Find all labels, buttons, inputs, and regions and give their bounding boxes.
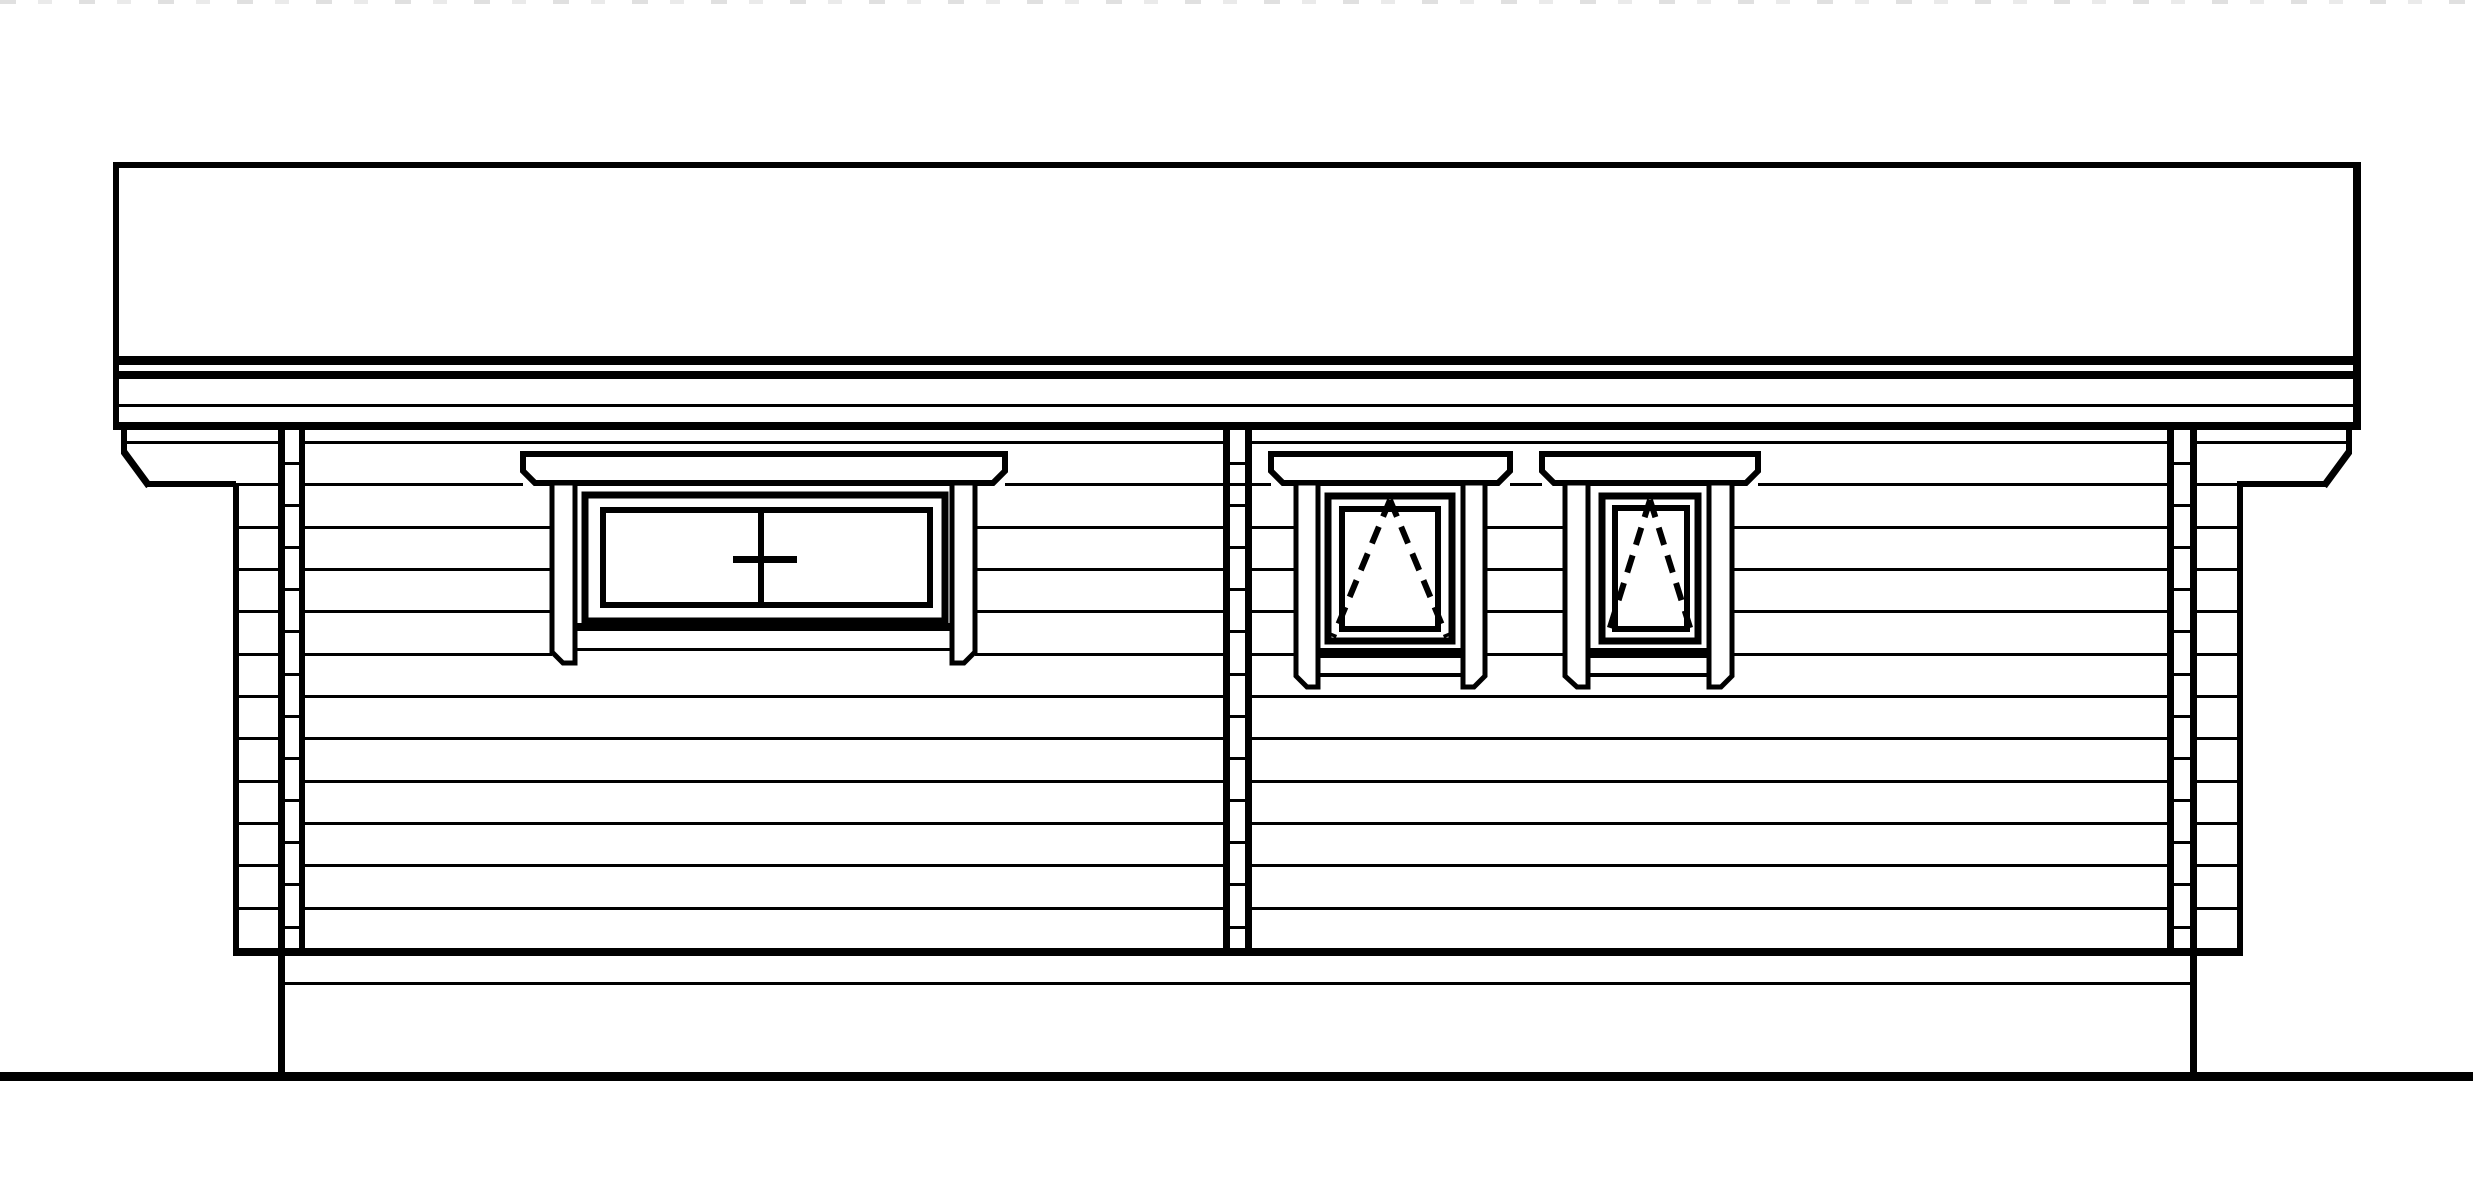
window-small-1 [1271,454,1510,687]
eave-left-chamfer [124,452,149,486]
log-end-division [285,630,299,633]
corner-joint-middle [1223,430,1252,956]
siding-board-line [239,822,278,825]
fascia-line-thin [113,404,2361,407]
window-header-board [1542,454,1758,483]
log-end-edge [1245,430,1252,956]
siding-board-line [239,568,278,571]
window-sill [1588,648,1708,658]
siding-board-line [1252,737,2167,740]
siding-board-line [2197,483,2237,486]
siding-board-line [239,780,278,783]
foundation-right-edge [2190,956,2197,1076]
window-sill [1318,648,1463,658]
siding-board-line [305,653,552,656]
log-end-division [1230,715,1245,718]
log-end-division [2174,588,2190,591]
log-end-division [2174,673,2190,676]
window-sill-bottom-line [573,648,952,651]
siding-board-line [305,737,1223,740]
corner-joint-left [278,430,305,956]
siding-board-line [1485,653,1565,656]
siding-board-line [1252,526,1296,529]
window-jamb-left [552,483,575,663]
siding-board-line [1252,695,2167,698]
window-jamb-right [1709,483,1732,687]
elevation-sheet [0,0,2473,1194]
log-end-division [2174,883,2190,886]
roof-top-edge [113,162,2361,168]
log-end-division [1230,546,1245,549]
log-end-division [1230,630,1245,633]
log-end-edge [278,430,285,956]
siding-board-line [305,864,1223,867]
window-header-board [523,454,1005,483]
siding-board-line [305,907,1223,910]
siding-board-line [975,526,1223,529]
window-sill [573,623,952,631]
log-end-division [1230,462,1245,465]
window-outer-frame [1328,496,1452,641]
window-jamb-right [1463,483,1485,687]
log-end-division [2174,546,2190,549]
siding-board-line [1485,610,1565,613]
siding-board-line [239,695,278,698]
foundation-left-edge [278,956,285,1076]
siding-board-line [239,483,278,486]
siding-board-line [305,526,552,529]
siding-board-line [1252,441,2167,444]
siding-board-line [2197,907,2237,910]
log-end-division [285,715,299,718]
log-end-edge [299,430,305,956]
siding-board-line [2197,526,2237,529]
log-end-division [1230,799,1245,802]
log-end-division [285,883,299,886]
siding-board-line [305,441,1223,444]
log-end-edge [2167,430,2174,956]
siding-board-line [2197,695,2237,698]
siding-board-line [1732,568,2167,571]
siding-board-line [239,526,278,529]
fascia-bottom-edge [113,422,2361,430]
window-small-2 [1542,454,1758,687]
siding-board-line [1252,568,1296,571]
siding-board-line [2197,441,2349,444]
log-end-division [285,673,299,676]
siding-board-line [305,610,552,613]
window-jamb-left [1565,483,1588,687]
window-sill-bottom-line [1318,673,1463,677]
eave-trim-right [2237,430,2352,487]
siding-board-line [1252,653,1296,656]
siding-board-line [2197,653,2237,656]
ground-line [0,1072,2473,1081]
log-end-division [1230,504,1245,507]
siding-board-line [1005,483,1271,486]
wall-bottom-edge [233,948,2243,956]
siding-board-line [1732,610,2167,613]
elevation-drawing [0,0,2473,1194]
siding-board-line [2197,737,2237,740]
siding-board-line [305,780,1223,783]
corner-joint-right [2167,430,2197,956]
window-jamb-right [952,483,975,663]
siding-board-line [1485,568,1565,571]
roof-left-edge [113,162,119,430]
log-end-division [285,504,299,507]
siding-board-line [1732,653,2167,656]
log-end-division [1230,757,1245,760]
log-end-division [2174,715,2190,718]
log-end-division [2174,841,2190,844]
log-end-division [1230,673,1245,676]
siding-board-line [1252,907,2167,910]
siding-board-line [1252,864,2167,867]
log-end-division [1230,588,1245,591]
siding-board-line [975,568,1223,571]
siding-board-line [975,653,1223,656]
window-header-board [1271,454,1510,483]
siding-board-line [305,483,523,486]
roof [113,162,2361,430]
log-end-division [285,841,299,844]
siding-board-line [1485,526,1565,529]
siding-board-line [124,441,278,444]
siding-board-line [305,822,1223,825]
log-end-division [1230,841,1245,844]
siding-board-line [239,737,278,740]
foundation [278,956,2197,1076]
siding-board-line [1758,483,2167,486]
siding-board-line [2197,568,2237,571]
roof-right-edge [2353,162,2361,430]
log-end-division [285,546,299,549]
eave-right-chamfer [2324,452,2349,486]
siding-board-line [239,907,278,910]
siding-board-line [975,610,1223,613]
siding-board-line [2197,864,2237,867]
log-end-division [285,799,299,802]
siding-board-line [2197,610,2237,613]
log-end-division [1230,926,1245,929]
siding-board-line [239,864,278,867]
siding-board-line [1252,822,2167,825]
fascia-line-upper [113,356,2361,365]
window-sill-bottom-line [1588,673,1708,677]
log-end-edge [2190,430,2197,956]
wall-left-edge [233,483,239,956]
log-end-division [2174,799,2190,802]
siding-board-line [2197,822,2237,825]
eave-left-bottom-edge [146,481,236,487]
log-end-division [2174,462,2190,465]
log-end-division [1230,883,1245,886]
siding-board-line [239,653,278,656]
siding-board-line [1732,526,2167,529]
foundation-top-line [281,982,2193,985]
log-end-edge [1223,430,1230,956]
siding-board-line [1252,780,2167,783]
fascia-line-lower [113,371,2361,379]
siding-board-line [305,695,1223,698]
window-large [523,454,1005,664]
eave-right-bottom-edge [2237,481,2327,487]
siding-board-line [2197,780,2237,783]
log-end-division [285,462,299,465]
log-end-division [285,588,299,591]
window-handle [733,556,797,563]
siding-board-line [1252,610,1296,613]
log-end-division [2174,757,2190,760]
log-end-division [285,757,299,760]
log-end-division [285,926,299,929]
wall-right-edge [2237,483,2243,956]
siding-board-line [239,610,278,613]
window-jamb-left [1296,483,1318,687]
log-end-division [2174,630,2190,633]
log-end-division [2174,926,2190,929]
siding-board-line [305,568,552,571]
siding-board-line [1510,483,1542,486]
eave-trim-left [121,430,236,487]
ground-line [0,1072,2473,1081]
log-end-division [2174,504,2190,507]
